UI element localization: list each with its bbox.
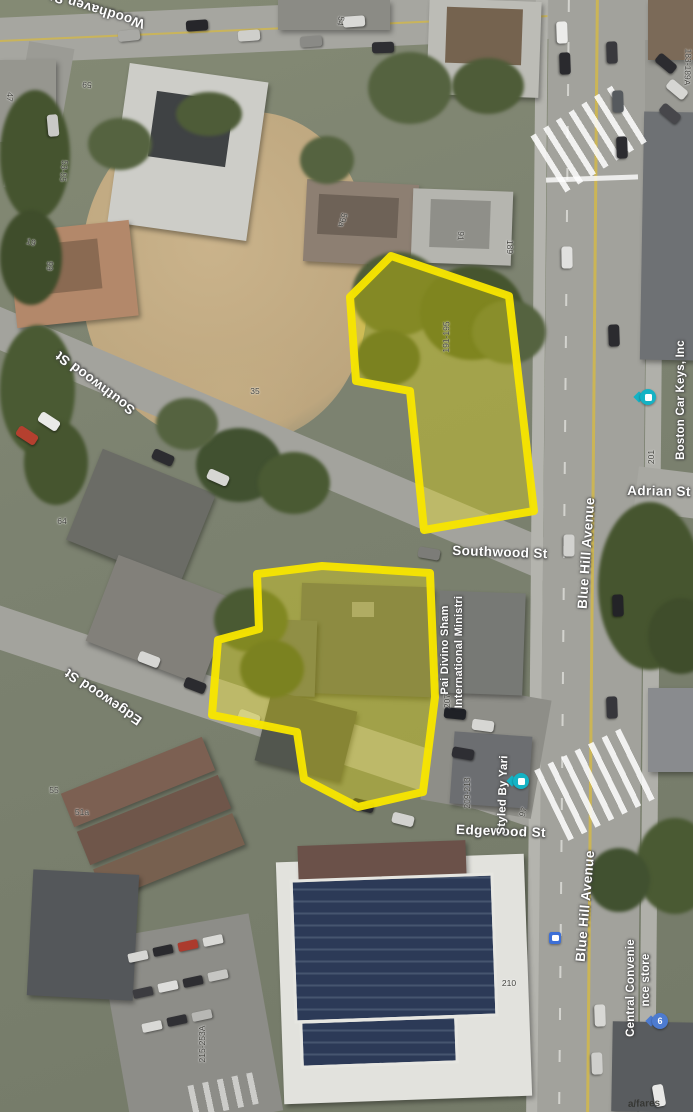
house-number: 215-253A	[197, 1026, 207, 1063]
pin-head	[640, 389, 656, 405]
street-label-southwood-mid[interactable]: Southwood St	[452, 543, 548, 561]
parcel-number: 191-195	[441, 321, 452, 352]
poi-label-central-convenience-line2[interactable]: nce store	[640, 954, 652, 1007]
car	[351, 798, 375, 814]
house-number: 183-189A	[682, 48, 693, 85]
building	[278, 0, 390, 30]
car	[591, 1052, 603, 1074]
shop-icon	[645, 394, 652, 401]
building-roof	[445, 7, 523, 66]
building-boston-car-keys	[640, 112, 693, 361]
house-number: 64	[57, 516, 66, 526]
car	[606, 41, 618, 63]
tree-canopy	[368, 52, 452, 124]
building-roof	[317, 194, 399, 238]
street-label-adrian[interactable]: Adrian St	[627, 483, 691, 499]
car	[612, 594, 624, 616]
building-roof	[429, 199, 491, 249]
car	[186, 19, 209, 32]
car	[616, 136, 628, 158]
car	[391, 812, 415, 828]
house-number: 209-213	[462, 777, 472, 808]
car	[47, 114, 60, 137]
bus-stop-icon[interactable]	[549, 932, 561, 944]
poi-label-central-convenience-line1[interactable]: Central Convenie	[625, 939, 637, 1037]
pin-head: 6	[652, 1013, 668, 1029]
road-surface-text: a/fares	[628, 1098, 661, 1110]
tree-canopy	[300, 136, 354, 184]
house-number: 54	[335, 15, 346, 26]
bus-glyph	[552, 935, 559, 941]
building	[27, 869, 139, 1000]
house-number: 59	[82, 80, 92, 91]
car	[372, 42, 394, 54]
shop-icon	[518, 778, 525, 785]
car	[606, 696, 618, 718]
house-number: 35	[250, 386, 259, 396]
car	[561, 246, 572, 268]
tree-canopy	[356, 330, 420, 386]
house-number: 189	[505, 240, 515, 254]
tree-canopy	[452, 58, 524, 114]
tree-canopy	[176, 92, 242, 136]
tree-canopy	[258, 452, 330, 514]
car	[559, 52, 571, 74]
car	[300, 35, 323, 48]
house-number: 51a	[75, 807, 89, 817]
poi-label-ministry-line1[interactable]: Pai Divino Sham	[439, 605, 451, 694]
building-ministry	[298, 583, 434, 698]
satellite-map: Woodhaven St Southwood St Southwood St E…	[0, 0, 693, 1112]
house-number: 99	[45, 261, 56, 271]
rooftop-unit	[352, 602, 374, 617]
poi-label-ministry-line2[interactable]: International Ministri	[453, 596, 465, 709]
building	[255, 690, 358, 781]
car	[612, 90, 624, 112]
poi-pin-styled-by-yari[interactable]	[510, 773, 528, 791]
poi-pin-central-convenience[interactable]: 6	[649, 1013, 667, 1031]
car	[238, 29, 261, 42]
house-number: 55	[49, 785, 58, 795]
tree-canopy	[0, 90, 70, 220]
car	[443, 707, 466, 720]
house-number: 201	[646, 450, 656, 464]
tree-canopy	[88, 118, 152, 170]
tree-canopy	[240, 640, 304, 698]
store-icon: 6	[657, 1017, 662, 1026]
pin-head	[513, 773, 529, 789]
building	[648, 688, 693, 772]
house-number: 91	[456, 231, 467, 241]
house-number: 53-55	[58, 160, 70, 183]
poi-pin-boston-car-keys[interactable]	[637, 389, 655, 407]
poi-label-boston-car-keys[interactable]: Boston Car Keys, Inc	[675, 340, 687, 460]
car	[594, 1004, 606, 1026]
car	[151, 448, 176, 467]
car	[417, 546, 441, 561]
tree-canopy	[472, 300, 546, 364]
car	[608, 324, 620, 346]
car	[117, 29, 140, 42]
house-number: 210	[502, 978, 516, 988]
car	[564, 535, 575, 557]
tree-canopy	[588, 848, 650, 912]
car	[556, 21, 568, 43]
house-number: 47	[5, 92, 16, 102]
tree-canopy	[156, 398, 218, 450]
solar-panel-array	[299, 1015, 459, 1068]
house-number: 207	[442, 694, 452, 708]
tree-canopy	[0, 210, 62, 305]
solar-panel-array	[290, 872, 499, 1023]
